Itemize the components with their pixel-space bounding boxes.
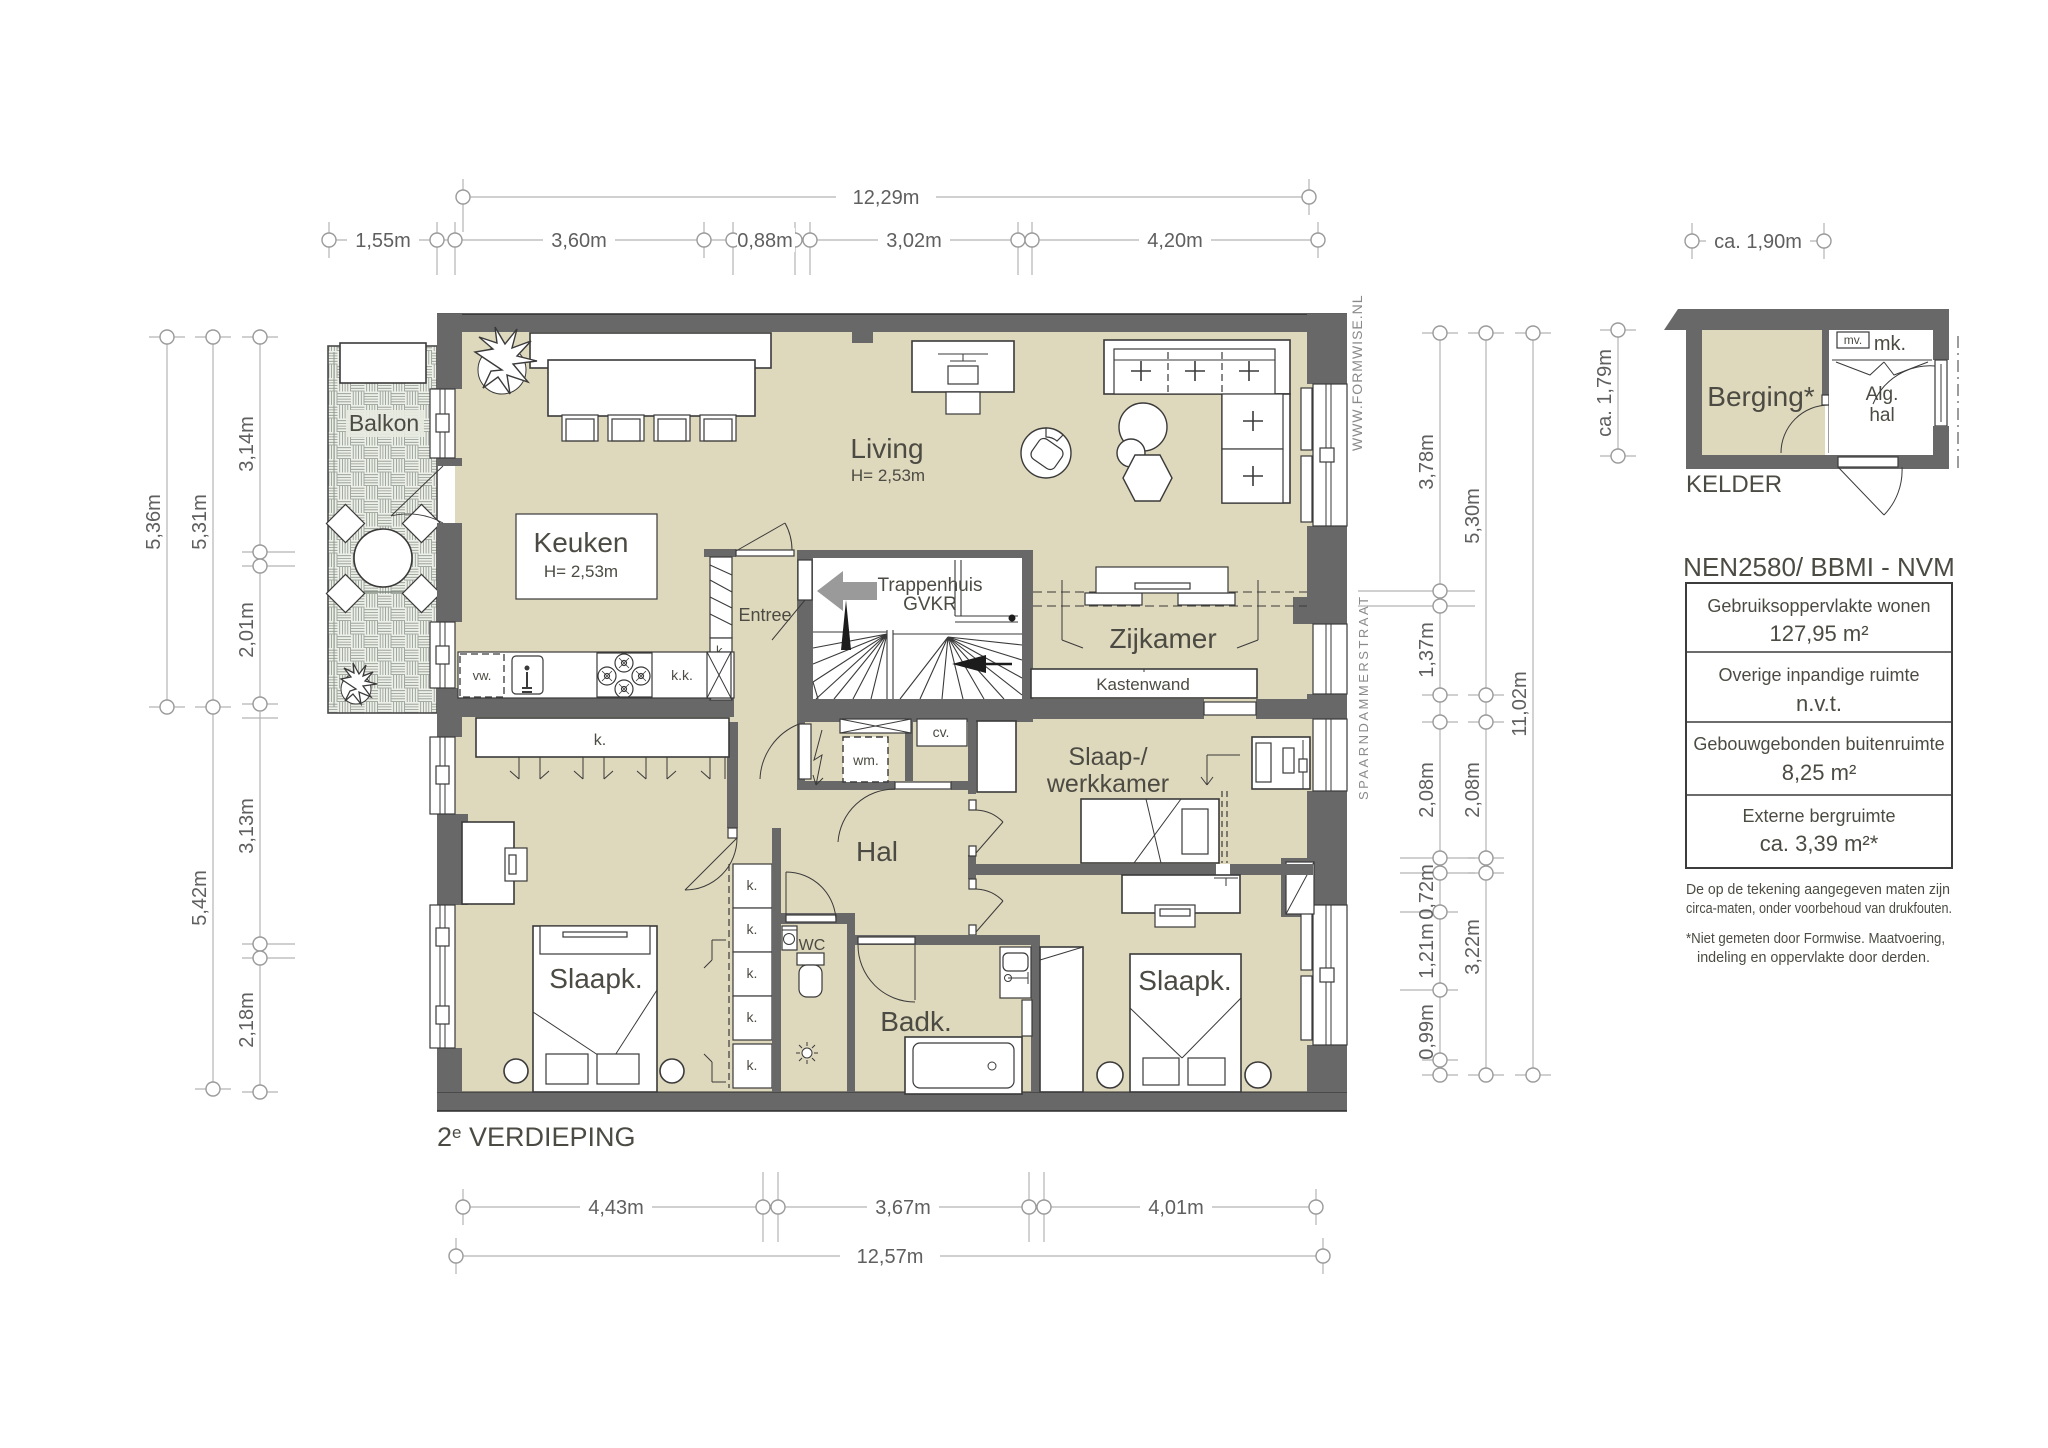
svg-text:5,36m: 5,36m — [143, 494, 165, 550]
svg-text:ca. 1,90m: ca. 1,90m — [1714, 231, 1802, 253]
svg-text:2,01m: 2,01m — [236, 602, 258, 658]
svg-text:Slaapk.: Slaapk. — [549, 963, 642, 994]
svg-text:cv.: cv. — [933, 724, 950, 740]
svg-text:Keuken: Keuken — [534, 527, 629, 558]
svg-text:127,95 m²: 127,95 m² — [1769, 621, 1868, 646]
svg-text:H= 2,53m: H= 2,53m — [851, 466, 925, 485]
svg-text:Entree: Entree — [738, 605, 791, 625]
svg-text:k.: k. — [747, 1057, 758, 1073]
svg-text:4,01m: 4,01m — [1148, 1197, 1204, 1219]
svg-text:Gebouwgebonden buitenruimte: Gebouwgebonden buitenruimte — [1693, 734, 1944, 754]
svg-text:Berging*: Berging* — [1707, 381, 1815, 412]
svg-text:k.: k. — [747, 1009, 758, 1025]
svg-text:4,43m: 4,43m — [588, 1197, 644, 1219]
svg-text:Alg.: Alg. — [1866, 384, 1899, 405]
svg-text:Zijkamer: Zijkamer — [1109, 623, 1216, 654]
svg-text:1,37m: 1,37m — [1416, 622, 1438, 678]
svg-text:k.: k. — [747, 921, 758, 937]
svg-text:WC: WC — [799, 937, 826, 954]
svg-text:KELDER: KELDER — [1686, 471, 1782, 498]
svg-text:0,72m: 0,72m — [1416, 864, 1438, 920]
svg-text:2e VERDIEPING: 2e VERDIEPING — [437, 1122, 636, 1152]
svg-text:H= 2,53m: H= 2,53m — [544, 562, 618, 581]
svg-text:De op de tekening aangegeven m: De op de tekening aangegeven maten zijn — [1686, 881, 1950, 898]
svg-text:Kastenwand: Kastenwand — [1096, 675, 1190, 694]
svg-text:0,88m: 0,88m — [737, 230, 793, 252]
svg-text:0,99m: 0,99m — [1416, 1004, 1438, 1060]
svg-text:k.: k. — [747, 965, 758, 981]
svg-text:Gebruiksoppervlakte wonen: Gebruiksoppervlakte wonen — [1707, 596, 1930, 616]
svg-text:circa-maten, onder voorbehoud: circa-maten, onder voorbehoud van drukfo… — [1686, 900, 1952, 917]
svg-text:2,08m: 2,08m — [1462, 762, 1484, 818]
svg-text:Hal: Hal — [856, 836, 898, 867]
svg-text:3,67m: 3,67m — [875, 1197, 931, 1219]
svg-text:Slaap-/: Slaap-/ — [1068, 743, 1147, 771]
svg-text:mv.: mv. — [1844, 333, 1862, 347]
svg-text:11,02m: 11,02m — [1509, 671, 1531, 736]
svg-text:*Niet gemeten door Formwise. M: *Niet gemeten door Formwise. Maatvoering… — [1686, 930, 1945, 947]
svg-text:SPAARNDAMMERSTRAAT: SPAARNDAMMERSTRAAT — [1356, 594, 1371, 800]
svg-text:8,25 m²: 8,25 m² — [1782, 760, 1857, 785]
svg-text:1,21m: 1,21m — [1416, 923, 1438, 979]
svg-text:NEN2580/ BBMI - NVM: NEN2580/ BBMI - NVM — [1683, 552, 1955, 582]
svg-text:2,18m: 2,18m — [236, 992, 258, 1048]
svg-text:3,60m: 3,60m — [551, 230, 607, 252]
svg-text:wm.: wm. — [852, 752, 879, 768]
svg-text:n.v.t.: n.v.t. — [1796, 691, 1842, 716]
svg-text:k.: k. — [747, 877, 758, 893]
svg-text:hal: hal — [1869, 405, 1894, 426]
svg-text:1,55m: 1,55m — [355, 230, 411, 252]
svg-text:2,08m: 2,08m — [1416, 762, 1438, 818]
svg-text:3,14m: 3,14m — [236, 416, 258, 472]
svg-text:5,30m: 5,30m — [1462, 488, 1484, 544]
svg-text:WWW.FORMWISE.NL: WWW.FORMWISE.NL — [1349, 294, 1365, 451]
svg-text:3,13m: 3,13m — [236, 798, 258, 854]
svg-text:mk.: mk. — [1874, 333, 1906, 355]
svg-text:indeling en oppervlakte door d: indeling en oppervlakte door derden. — [1697, 949, 1930, 966]
svg-text:vw.: vw. — [473, 668, 492, 683]
svg-text:12,29m: 12,29m — [853, 187, 920, 209]
svg-text:GVKR: GVKR — [903, 594, 957, 615]
svg-text:Externe bergruimte: Externe bergruimte — [1742, 806, 1895, 826]
svg-text:werkkamer: werkkamer — [1046, 770, 1169, 798]
svg-text:k.: k. — [594, 732, 606, 749]
svg-text:3,22m: 3,22m — [1462, 919, 1484, 975]
svg-text:k.k.: k.k. — [671, 667, 693, 683]
svg-text:12,57m: 12,57m — [857, 1246, 924, 1268]
svg-text:Slaapk.: Slaapk. — [1138, 965, 1231, 996]
svg-text:3,02m: 3,02m — [886, 230, 942, 252]
svg-text:Badk.: Badk. — [880, 1006, 952, 1037]
svg-text:Overige inpandige ruimte: Overige inpandige ruimte — [1718, 665, 1919, 685]
svg-text:ca. 3,39 m²*: ca. 3,39 m²* — [1760, 831, 1879, 856]
svg-text:ca. 1,79m: ca. 1,79m — [1594, 349, 1616, 437]
svg-text:5,42m: 5,42m — [189, 870, 211, 926]
svg-text:Balkon: Balkon — [349, 410, 419, 436]
svg-text:Living: Living — [850, 433, 923, 464]
svg-text:Trappenhuis: Trappenhuis — [878, 575, 983, 596]
svg-text:3,78m: 3,78m — [1416, 434, 1438, 490]
svg-text:4,20m: 4,20m — [1147, 230, 1203, 252]
svg-text:5,31m: 5,31m — [189, 494, 211, 550]
